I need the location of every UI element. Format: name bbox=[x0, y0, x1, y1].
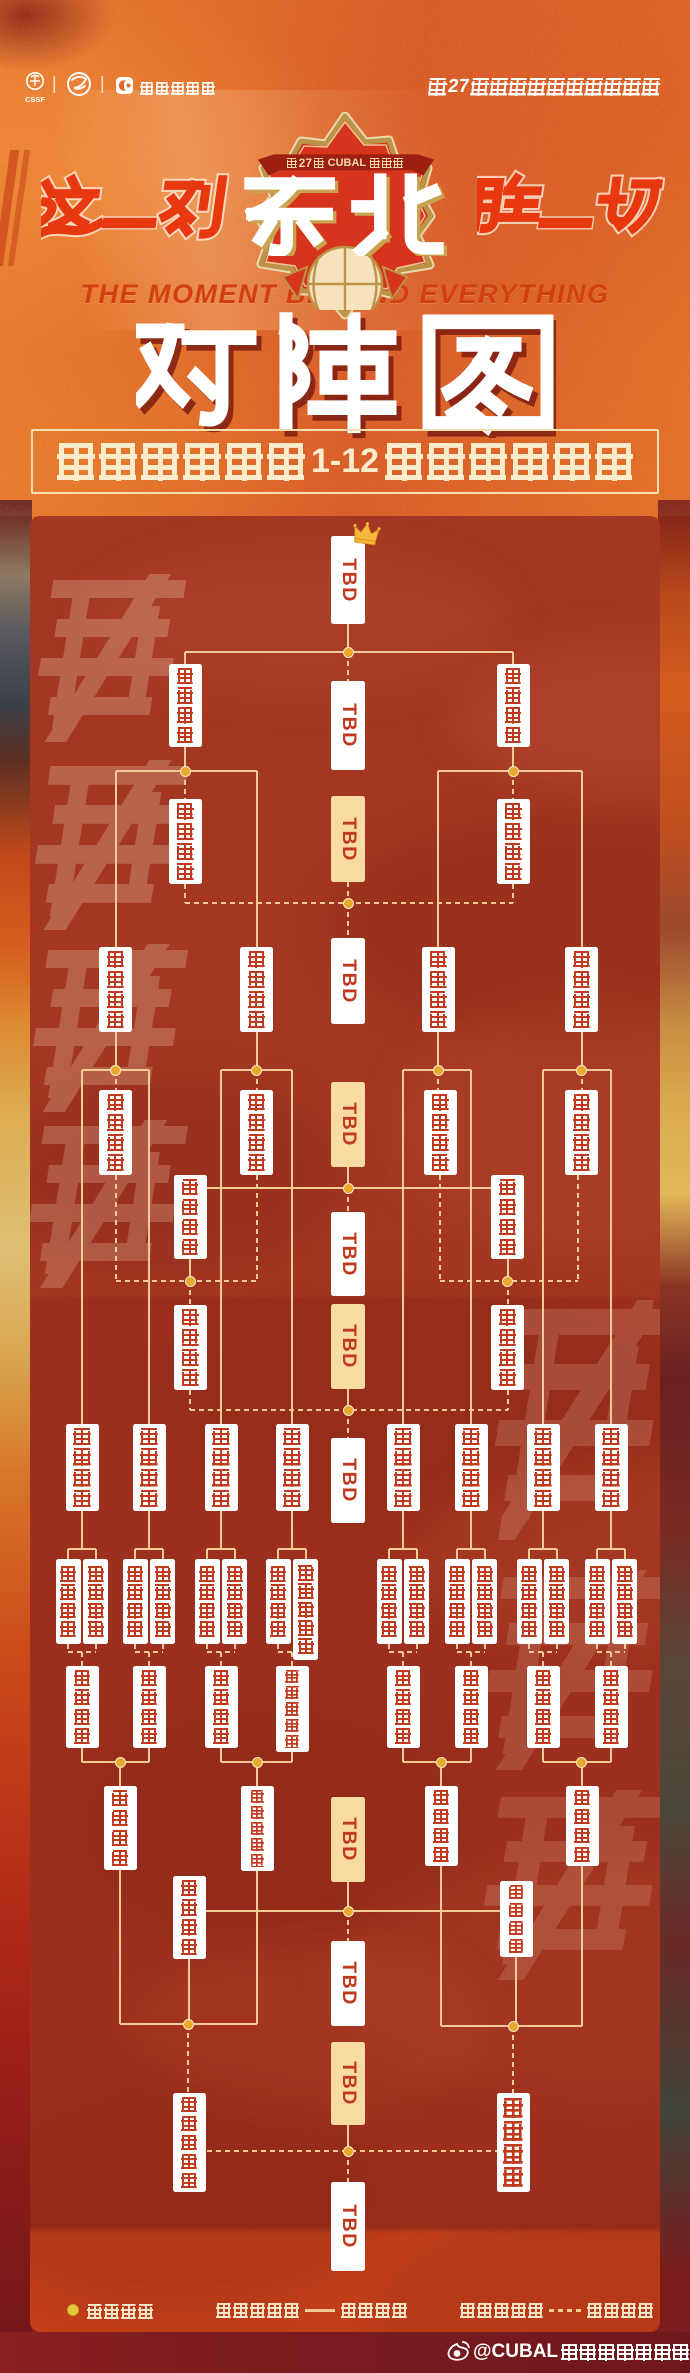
svg-text:CSSF: CSSF bbox=[25, 95, 45, 104]
